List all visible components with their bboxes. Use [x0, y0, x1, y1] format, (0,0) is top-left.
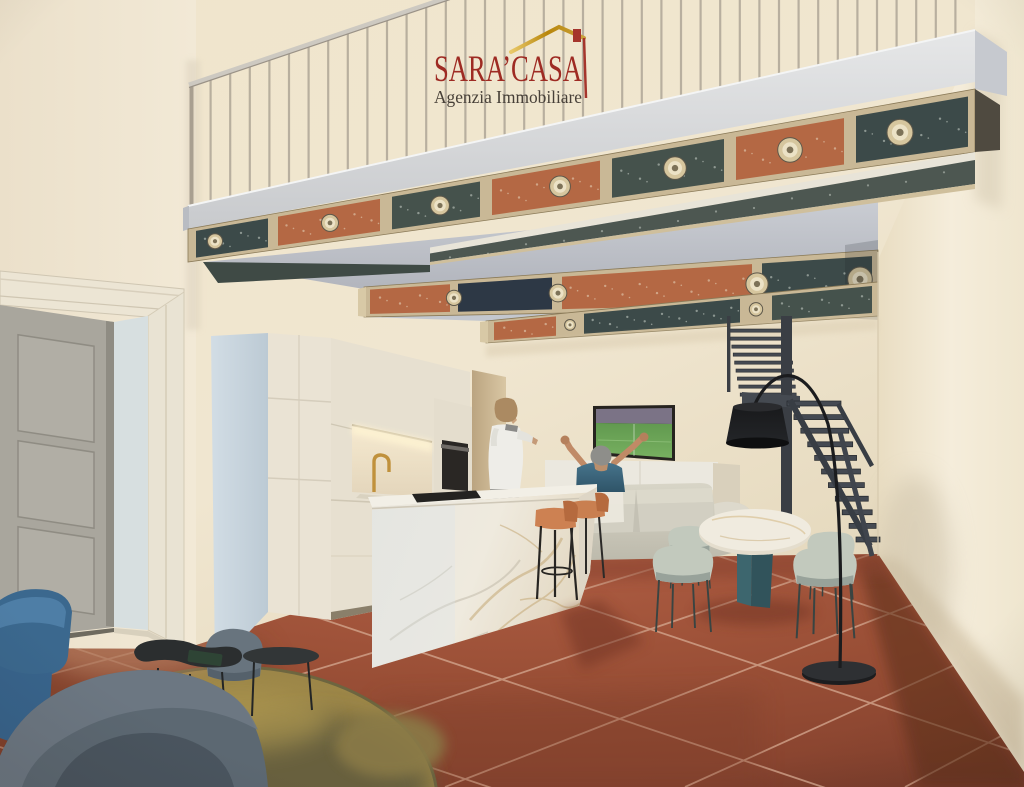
svg-text:Agenzia Immobiliare: Agenzia Immobiliare: [434, 87, 582, 107]
svg-text:SARA’CASA: SARA’CASA: [434, 49, 582, 90]
